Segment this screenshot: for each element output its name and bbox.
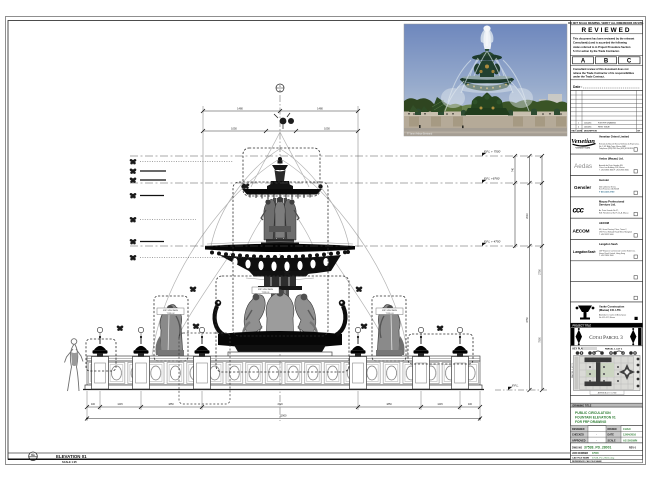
svg-text:REFERENCE CAD FILE NAME: REFERENCE CAD FILE NAME [572,460,602,463]
svg-text:PUBLIC CIRCULATION: PUBLIC CIRCULATION [575,411,611,415]
svg-text:DATE: DATE [608,434,615,437]
svg-text:T 415.433.3700: T 415.433.3700 [599,190,615,193]
svg-text:Gensler: Gensler [574,185,591,190]
svg-text:400: 400 [91,403,96,406]
svg-text:1050: 1050 [324,127,330,131]
svg-text:1480: 1480 [237,107,243,111]
svg-text:DWG NO: DWG NO [572,446,582,449]
svg-text:DESIGNED: DESIGNED [572,428,585,431]
svg-text:FIRST ISSUE: FIRST ISSUE [598,127,610,129]
svg-text:Venetian Orient Limited: Venetian Orient Limited [599,135,629,139]
svg-text:© Yann Arthus-Bertrand: © Yann Arthus-Bertrand [407,133,433,136]
svg-text:No. 411-417, Macau: No. 411-417, Macau [599,317,615,319]
svg-text:AECOM: AECOM [599,221,610,225]
svg-text:CAD FILE NAME: CAD FILE NAME [572,456,590,459]
svg-text:1245: 1245 [117,403,123,406]
svg-text:PARCEL 1, LOT 2: PARCEL 1, LOT 2 [605,348,623,351]
svg-text:FRP SPECIMEN: FRP SPECIMEN [258,289,274,291]
svg-text:Edif. Residencial Ka Fu 12-A,: Edif. Residencial Ka Fu 12-A, Macau [599,211,628,214]
svg-text:AECOM: AECOM [573,229,590,235]
svg-text:7500: 7500 [539,337,542,343]
svg-text:San Francisco CA 94108: San Francisco CA 94108 [599,188,619,191]
svg-text:Date :: Date : [573,85,582,89]
svg-text:1: 1 [578,123,579,125]
svg-text:JOB NUMBER: JOB NUMBER [572,452,588,455]
svg-text:CHAO: CHAO [623,427,631,431]
svg-text:Consultant review of this docu: Consultant review of this document does … [573,67,629,71]
svg-text:F.F.L.: F.F.L. [512,384,519,388]
svg-text:Aedas: Aedas [574,163,592,170]
svg-text:1850: 1850 [386,403,392,406]
svg-text:12/04/2016: 12/04/2016 [623,433,637,437]
svg-text:10/03/16: 10/03/16 [584,127,591,129]
svg-text:2750: 2750 [539,269,542,275]
svg-text:Gensler: Gensler [599,178,609,182]
svg-text:Services Ltd.: Services Ltd. [599,203,616,207]
svg-text:Telephone (853) 8118 Fax (853: Telephone (853) 8118 Fax (853) 8118 8118 [599,148,633,150]
svg-text:37538_PD_28001: 37538_PD_28001 [584,446,611,450]
svg-text:SCALE: SCALE [608,439,617,442]
svg-text:ccc: ccc [573,206,585,215]
svg-text:This document has been reviewe: This document has been reviewed by the r… [573,36,634,40]
svg-text:KEY PLAN: KEY PLAN [573,348,585,351]
svg-text:F.F.L +6760: F.F.L +6760 [484,177,500,181]
svg-text:37535: 37535 [592,452,599,455]
svg-text:A: A [279,88,281,92]
svg-text:REV 0: REV 0 [629,446,637,449]
svg-text:ELEVATION 01: ELEVATION 01 [56,454,87,459]
svg-text:1480: 1480 [317,107,323,111]
svg-text:TYPE 03: TYPE 03 [385,313,394,315]
svg-text:400: 400 [468,403,473,406]
svg-text:B: B [604,59,609,65]
svg-text:PARCEL 1, LOT 1: PARCEL 1, LOT 1 [571,363,574,378]
svg-text:FRP SPECIMEN: FRP SPECIMEN [382,310,398,312]
svg-text:under the Trade Contract.: under the Trade Contract. [573,75,605,79]
svg-text:Aedas (Macau) Ltd.: Aedas (Macau) Ltd. [599,156,624,160]
svg-text:DRAWING TITLE: DRAWING TITLE [573,404,592,407]
svg-text:01: 01 [31,453,35,457]
svg-text:Consultant(s) and is accorded: Consultant(s) and is accorded the follow… [573,41,627,45]
svg-text:Langdon Seah: Langdon Seah [599,242,618,246]
svg-text:1850: 1850 [168,403,174,406]
svg-text:CHECKED: CHECKED [572,434,584,437]
svg-text:FRP SPECIMEN: FRP SPECIMEN [163,310,179,312]
svg-text:A: A [581,59,586,65]
svg-text:5.4 for action by the Trade Co: 5.4 for action by the Trade Contractor. [573,49,620,53]
svg-text:F.F.L + 4750: F.F.L + 4750 [484,240,501,244]
svg-text:12/04/16: 12/04/16 [584,123,591,125]
svg-text:TYPE 02: TYPE 02 [166,313,175,315]
svg-text:T +852 2830 3500: T +852 2830 3500 [599,255,614,257]
svg-text:4720: 4720 [277,403,283,406]
svg-text:1245: 1245 [437,403,443,406]
svg-text:740: 740 [512,167,515,172]
svg-text:AS SHOWN: AS SHOWN [623,438,637,442]
svg-text:FOR FRP DRAWING: FOR FRP DRAWING [575,420,607,424]
svg-text:FOUNTAIN ELEVATION 01: FOUNTAIN ELEVATION 01 [575,415,616,419]
svg-text:VENETIAN: VENETIAN [576,147,591,150]
svg-text:PROJECT TITLE: PROJECT TITLE [573,325,592,328]
svg-text:Yaoke Construction: Yaoke Construction [599,305,625,309]
svg-text:status referred to in Project: status referred to in Project Procedure … [573,45,631,49]
svg-text:relieve the Trade Contractor o: relieve the Trade Contractor of its resp… [573,71,635,75]
svg-text:AVENIDA DO COTAI: AVENIDA DO COTAI [598,392,617,395]
svg-text:SCALE 1:25: SCALE 1:25 [62,460,77,464]
svg-text:APPROVED: APPROVED [572,439,586,442]
svg-text:1050: 1050 [231,127,237,131]
svg-text:DRAWN: DRAWN [608,428,617,431]
svg-text:T +852 3922 9000: T +852 3922 9000 [599,234,614,236]
svg-text:FOR FRP DRAWING: FOR FRP DRAWING [598,122,616,125]
svg-text:4750: 4750 [526,317,529,323]
svg-text:LangdonSeah: LangdonSeah [573,250,595,254]
svg-text:REVIEWED: REVIEWED [581,27,631,34]
svg-text:TYPE 01: TYPE 01 [261,292,270,294]
svg-text:2010: 2010 [526,213,529,219]
svg-text:0: 0 [578,127,579,129]
svg-text:T +853 2833 3666 F +853 2833: T +853 2833 3666 F +853 2833 3660 [599,169,629,171]
svg-text:C: C [627,59,632,65]
svg-text:11900: 11900 [279,414,287,418]
svg-text:F.F.L + 7500: F.F.L + 7500 [484,150,501,154]
svg-text:(Macau) CO. LTD.: (Macau) CO. LTD. [599,308,621,312]
